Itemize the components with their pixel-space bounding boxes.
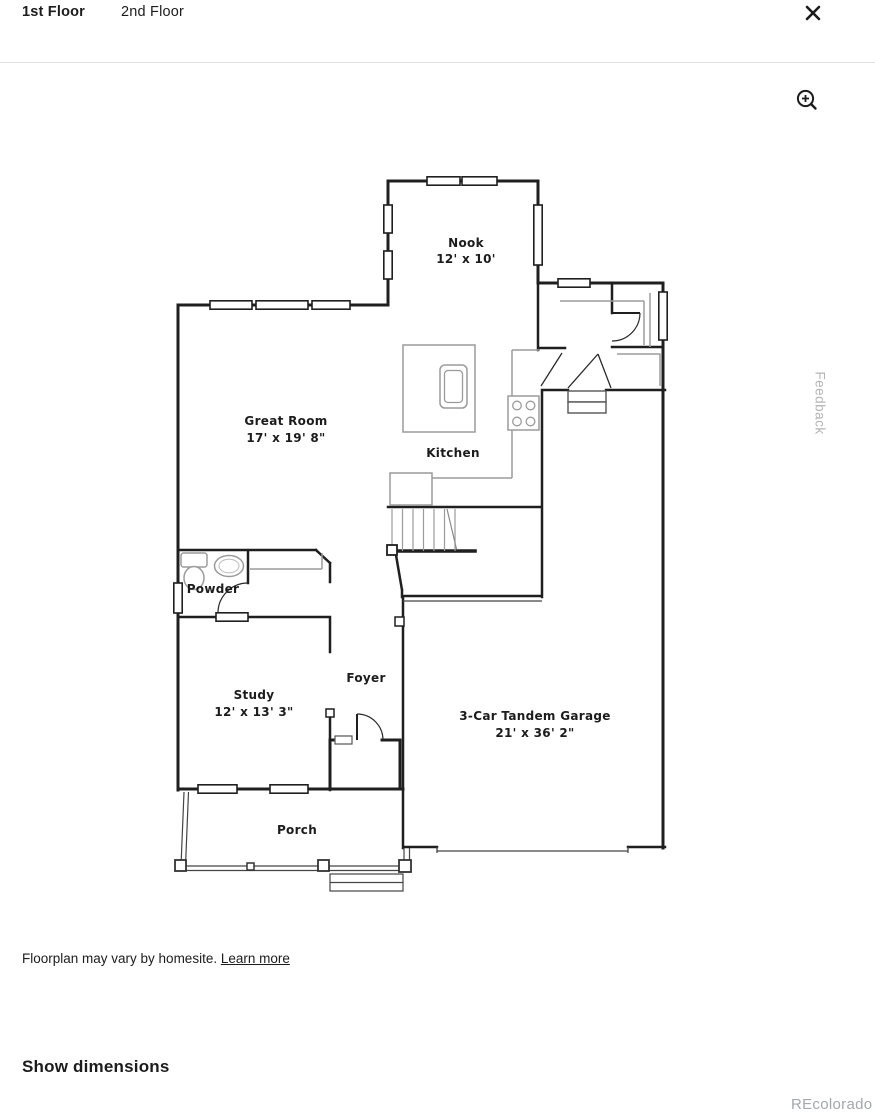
disclaimer-text: Floorplan may vary by homesite. Learn mo…: [22, 951, 290, 966]
room-dims-nook: 12' x 10': [436, 252, 496, 266]
room-dims-garage: 21' x 36' 2": [495, 726, 574, 740]
kitchen-island: [403, 345, 475, 432]
room-dims-study: 12' x 13' 3": [214, 705, 293, 719]
room-label-kitchen: Kitchen: [426, 446, 480, 460]
stairs: [387, 509, 457, 555]
room-label-nook: Nook: [448, 236, 484, 250]
floorplan-drawing: Nook 12' x 10' Great Room 17' x 19' 8" K…: [0, 0, 875, 1113]
show-dimensions-button[interactable]: Show dimensions: [22, 1057, 170, 1077]
disclaimer-body: Floorplan may vary by homesite.: [22, 951, 221, 966]
garage-entry-steps: [568, 391, 606, 413]
room-label-study: Study: [234, 688, 275, 702]
room-label-porch: Porch: [277, 823, 317, 837]
learn-more-link[interactable]: Learn more: [221, 951, 290, 966]
porch-railing: [175, 792, 411, 891]
recolorado-watermark: REcolorado: [791, 1096, 872, 1113]
room-label-foyer: Foyer: [346, 671, 385, 685]
powder-sink: [215, 556, 244, 577]
floorplan-viewer: 1st Floor 2nd Floor: [0, 0, 875, 1113]
feedback-tab[interactable]: Feedback: [812, 365, 829, 440]
room-label-garage: 3-Car Tandem Garage: [459, 709, 610, 723]
room-label-powder: Powder: [187, 582, 240, 596]
room-dims-great-room: 17' x 19' 8": [246, 431, 325, 445]
stove: [508, 396, 539, 430]
room-label-great-room: Great Room: [244, 414, 327, 428]
